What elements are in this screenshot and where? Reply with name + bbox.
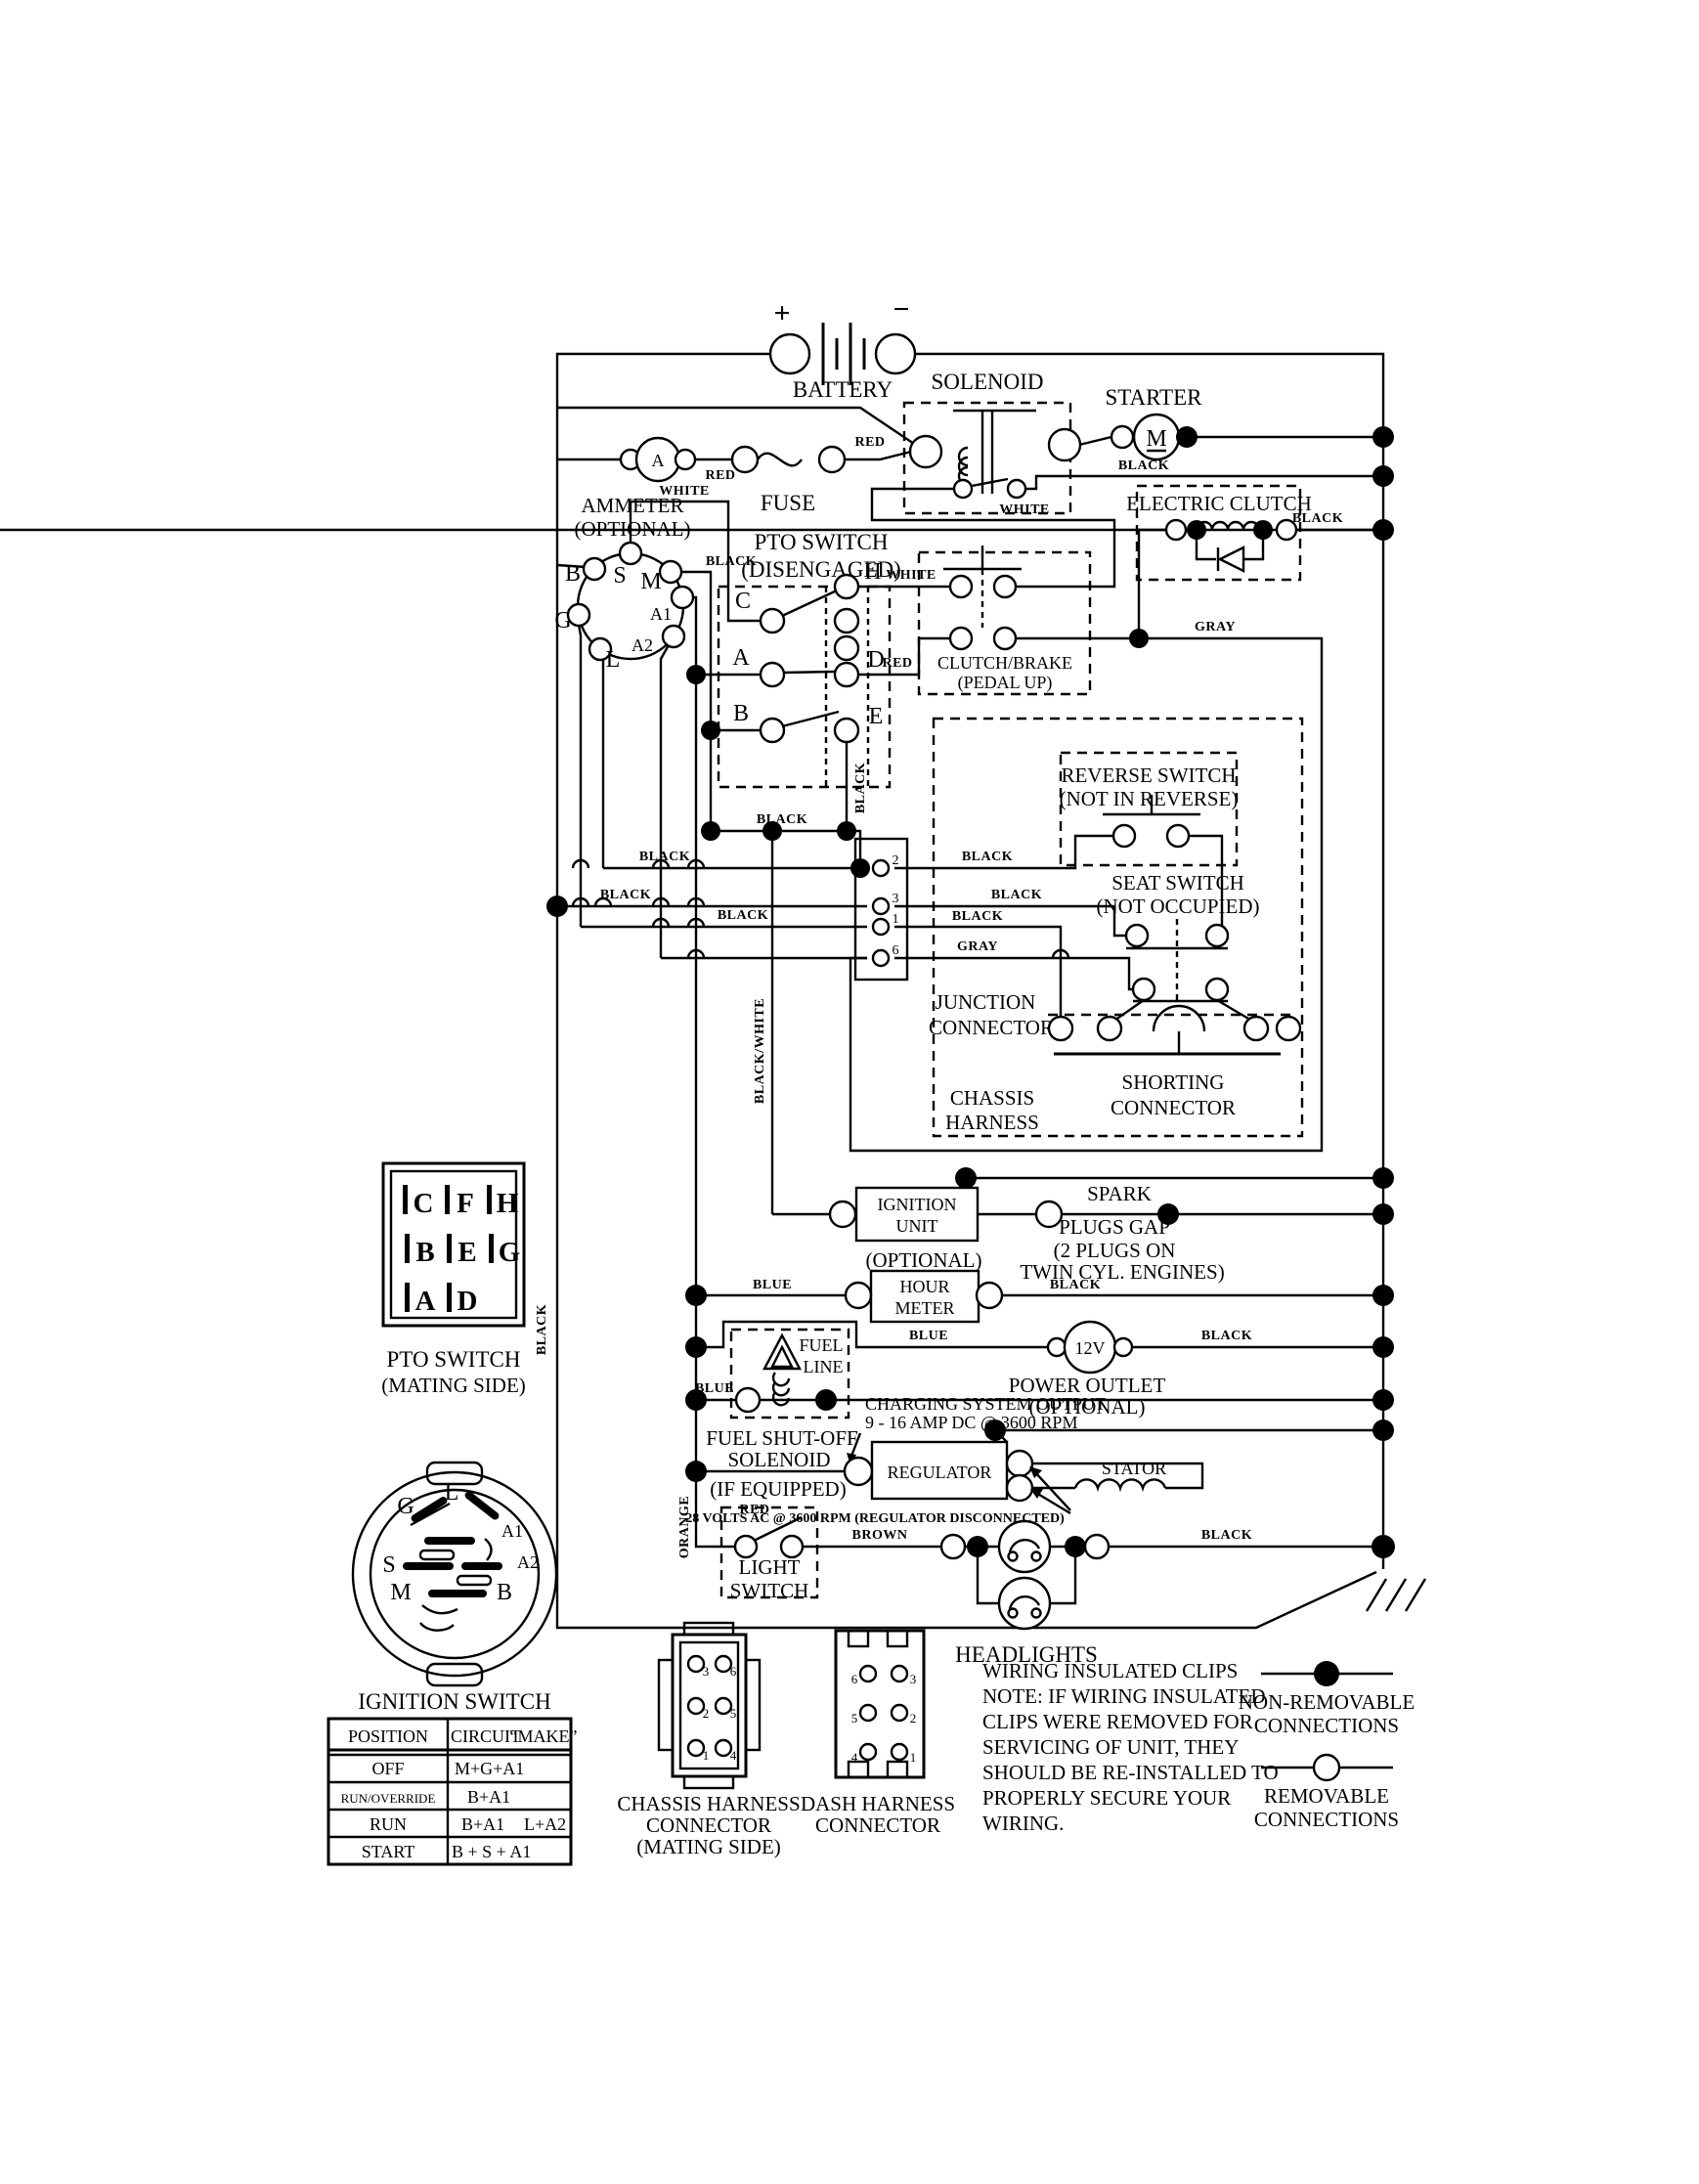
note-line-2: NOTE: IF WIRING INSULATED (982, 1684, 1266, 1708)
pto-letter-e: E (869, 704, 884, 729)
ignition-terminal (830, 1201, 855, 1227)
pto-letter-h: H (864, 559, 881, 585)
reverse-contact (1113, 825, 1135, 847)
table-r2c2: B+A1 (467, 1787, 510, 1807)
outlet-terminal (1048, 1338, 1066, 1356)
junction-label-2: CONNECTOR (929, 1016, 1054, 1039)
charging-label-2: 9 - 16 AMP DC @ 3600 RPM (865, 1413, 1077, 1432)
fuel-arrow (764, 1335, 800, 1369)
light-label-2: SWITCH (730, 1579, 809, 1602)
headlight-terminal (941, 1535, 965, 1558)
solenoid-label: SOLENOID (932, 370, 1044, 394)
junction-pin-1 (873, 919, 889, 935)
dot (984, 1420, 1006, 1441)
legend-r-2: CONNECTIONS (1254, 1808, 1399, 1831)
pto-contact-b (761, 719, 784, 742)
hour-optional: (OPTIONAL) (866, 1248, 982, 1272)
wire-label-black: BLACK (952, 909, 1003, 924)
pto-contact (835, 609, 858, 633)
wire-solenoid-black (1017, 476, 1383, 489)
solenoid-contact (1049, 429, 1080, 460)
dot (1176, 426, 1198, 448)
rosette-m: M (640, 569, 661, 594)
clutch-brake-label: CLUTCH/BRAKE (937, 653, 1072, 673)
non-removable-dot (1314, 1661, 1339, 1686)
dash-conn-label-1: DASH HARNESS (801, 1792, 955, 1815)
charging-label-1: CHARGING SYSTEM OUTPUT (865, 1394, 1106, 1414)
pto-contact-h (835, 575, 858, 598)
dot (1372, 465, 1394, 487)
rosette-l: L (606, 647, 621, 673)
wiring-note: WIRING INSULATED CLIPS NOTE: IF WIRING I… (982, 1659, 1279, 1835)
dash-pin: 2 (910, 1711, 917, 1725)
solenoid-contact (910, 436, 941, 467)
headlight-pin (1009, 1609, 1018, 1618)
dash-pin: 3 (910, 1672, 917, 1686)
note-line-5: SHOULD BE RE-INSTALLED TO (982, 1761, 1279, 1784)
legend-nr-2: CONNECTIONS (1254, 1714, 1399, 1737)
outlet-terminal (1114, 1338, 1132, 1356)
starter-m: M (1146, 426, 1166, 452)
wire-label-red: RED (854, 435, 885, 450)
dot (1372, 1420, 1394, 1441)
chassis-conn-label-1: CHASSIS HARNESS (617, 1792, 800, 1815)
reverse-contact (1167, 825, 1189, 847)
outlet-12v: 12V (1075, 1338, 1106, 1358)
chassis-pin: 4 (730, 1748, 737, 1763)
table-h3: “MAKE” (510, 1726, 578, 1746)
ignition-switch-drawing: G L A1 A2 S M B IGNITION SWITCH (353, 1463, 556, 1714)
shorting-label-2: CONNECTOR (1111, 1096, 1236, 1119)
shorting-arc (1154, 1006, 1204, 1031)
pto-contact-e (835, 719, 858, 742)
seat-contact (1206, 925, 1228, 946)
dash-pin: 5 (851, 1711, 858, 1725)
fuel-label-2: LINE (804, 1357, 844, 1376)
wire-label-black: BLACK (1118, 459, 1169, 473)
pto-blade (784, 672, 835, 673)
spark-gap-terminal (1036, 1201, 1062, 1227)
rosette-terminal-s (620, 543, 641, 564)
fuel-shutoff: FUEL LINE BLUE FUEL SHUT-OFF SOLENOID (I… (695, 1335, 858, 1517)
spark-label-1: SPARK (1087, 1182, 1152, 1205)
wire-clutch-feed (1139, 530, 1176, 638)
volts-arrowhead-2 (1030, 1489, 1043, 1499)
note-line-4: SERVICING OF UNIT, THEY (982, 1735, 1239, 1759)
ignition-unit-label-1: IGNITION (878, 1195, 957, 1214)
ign-m: M (390, 1580, 411, 1605)
dot (685, 1389, 707, 1411)
pin-g: G (499, 1237, 521, 1268)
table-r4c2: B + S + A1 (452, 1842, 531, 1861)
pin-d: D (457, 1286, 478, 1317)
ign-g: G (397, 1494, 414, 1519)
shorting-pin (1049, 1017, 1072, 1040)
seat-contact (1126, 925, 1148, 946)
dot (1372, 1285, 1394, 1306)
note-line-7: WIRING. (982, 1812, 1064, 1835)
junction-pin-num: 6 (893, 943, 899, 958)
spark-label-3: (2 PLUGS ON (1054, 1239, 1176, 1262)
pto-contact (835, 636, 858, 660)
dot (1372, 1203, 1394, 1225)
wire-label-black-bus: BLACK (535, 1304, 549, 1355)
fuse-terminal (732, 447, 758, 472)
wire-label-black: BLACK (1201, 1329, 1252, 1343)
solenoid-blade (972, 479, 1008, 486)
ammeter-symbol: A (652, 451, 665, 470)
junction-pin-2 (873, 860, 889, 876)
dot (1372, 1535, 1395, 1558)
rosette-b: B (565, 561, 581, 587)
pedal-contact (950, 628, 972, 649)
dash-pin: 1 (910, 1750, 917, 1765)
seat-label-2: (NOT OCCUPIED) (1096, 895, 1259, 918)
pedal-contact (994, 628, 1016, 649)
junction-pin-num: 2 (893, 853, 899, 868)
junction-connector: 2 3 1 6 JUNCTION CONNECTOR CHASSIS HARNE… (600, 812, 1054, 1134)
wire-label-gray: GRAY (957, 939, 998, 954)
hour-terminal (846, 1283, 871, 1308)
wire-pin6-seat (894, 958, 1133, 989)
fuel-shutoff-3: (IF EQUIPPED) (710, 1477, 846, 1501)
dot (1372, 426, 1394, 448)
battery-label: BATTERY (793, 377, 893, 402)
pto-letter-b: B (733, 701, 749, 726)
dot (685, 1285, 707, 1306)
wire-label-black-vert: BLACK (853, 763, 868, 813)
rosette-a1: A1 (650, 604, 672, 624)
wire-label-white: WHITE (999, 502, 1050, 517)
regulator-terminal (1007, 1475, 1032, 1501)
hour-terminal (977, 1283, 1002, 1308)
wire-a2 (661, 636, 674, 958)
table-r3c3: L+A2 (524, 1814, 566, 1834)
dot (955, 1167, 977, 1189)
chassis-harness-connector: 3 6 2 5 1 4 CHASSIS HARNESS CONNECTOR (M… (617, 1623, 800, 1858)
battery-positive-terminal (770, 334, 809, 373)
regulator-terminal (1007, 1451, 1032, 1476)
wire-label-brown: BROWN (852, 1528, 908, 1543)
wire-fuse-to-solenoid (844, 452, 911, 459)
dot (850, 858, 870, 878)
pto-contact-a (761, 663, 784, 686)
seat-contact (1206, 979, 1228, 1000)
dot (1253, 520, 1273, 540)
wire-label-black: BLACK (962, 850, 1013, 864)
pto-letter-c: C (735, 589, 751, 614)
wire-pin3-seat (894, 906, 1126, 936)
chassis-pin: 2 (703, 1706, 710, 1721)
junction-label-1: JUNCTION (936, 990, 1036, 1014)
schematic-canvas: + − BATTERY A AMMETER (OPTIONAL) RED FUS… (0, 0, 1699, 2184)
key-switch-connector: S B M G A1 A2 L BLACK (554, 543, 757, 673)
ground-hatch-2 (1386, 1579, 1406, 1611)
dot (685, 1461, 707, 1482)
pto-contact-c (761, 609, 784, 633)
dot (1372, 1167, 1394, 1189)
wire-label-black-white: BLACK/WHITE (753, 998, 767, 1104)
ground-hatch-1 (1367, 1579, 1386, 1611)
dot (546, 895, 568, 917)
light-label-1: LIGHT (739, 1555, 801, 1579)
pto-mating-side: C F H B E G A D PTO SWITCH (MATING SIDE) (381, 1163, 526, 1397)
dot (762, 821, 782, 841)
regulator-label: REGULATOR (888, 1463, 992, 1482)
solenoid-contact-small (1008, 480, 1025, 498)
clutch-brake: CLUTCH/BRAKE (PEDAL UP) GRAY (937, 546, 1236, 693)
dot (1187, 520, 1206, 540)
chassis-pin: 1 (703, 1748, 710, 1763)
volts-arrow-2 (1036, 1493, 1070, 1513)
junction-pin-6 (873, 950, 889, 966)
ammeter-terminal (675, 450, 695, 469)
pedal-contact (950, 576, 972, 597)
note-line-3: CLIPS WERE REMOVED FOR (982, 1710, 1253, 1733)
battery-plus: + (773, 297, 790, 329)
ign-a1: A1 (501, 1521, 523, 1541)
starter-label: STARTER (1105, 385, 1202, 410)
junction-pin-num: 3 (893, 892, 899, 906)
wire-l (600, 649, 603, 868)
wire-label-red: RED (705, 468, 735, 483)
wire-label-white: WHITE (659, 484, 710, 499)
ign-b: B (497, 1580, 512, 1605)
pin-a: A (415, 1286, 436, 1317)
rosette-terminal-b (584, 558, 605, 580)
pto-mating-title-2: (MATING SIDE) (381, 1374, 526, 1397)
wire-label-black: BLACK (1292, 511, 1343, 526)
solenoid-contact-small (954, 480, 972, 498)
shorting-connector: SHORTING CONNECTOR (1048, 1006, 1300, 1119)
ignition-unit-label-2: UNIT (896, 1216, 938, 1236)
chassis-harness-2: HARNESS (945, 1111, 1039, 1134)
fuel-shutoff-2: SOLENOID (728, 1448, 831, 1471)
dot (1129, 629, 1149, 648)
ign-s: S (382, 1552, 395, 1578)
pin-b: B (415, 1237, 434, 1268)
dot (837, 821, 856, 841)
pto-contact-d (835, 663, 858, 686)
pto-switch-box (719, 587, 890, 787)
dot (686, 665, 706, 684)
dot (1372, 1389, 1394, 1411)
battery-negative-terminal (876, 334, 915, 373)
wire-label-black: BLACK (1050, 1278, 1101, 1292)
chassis-conn-tab-b (684, 1776, 733, 1788)
legend-r-1: REMOVABLE (1264, 1784, 1389, 1808)
reverse-switch: REVERSE SWITCH (NOT IN REVERSE) (1060, 764, 1239, 847)
chassis-pin: 3 (703, 1664, 710, 1679)
clutch-brake-pedal-up: (PEDAL UP) (958, 673, 1053, 693)
dot (685, 1336, 707, 1358)
dot (1065, 1536, 1086, 1557)
rosette-terminal-a1 (672, 587, 693, 608)
chassis-pin: 6 (730, 1664, 737, 1679)
volts-note: 28 VOLTS AC @ 3600 RPM (REGULATOR DISCON… (685, 1511, 1065, 1526)
wire-label-black: BLACK (706, 554, 757, 569)
ignition-table: POSITION CIRCUIT “MAKE” OFF M+G+A1 RUN/O… (328, 1719, 577, 1864)
ign-a2: A2 (517, 1552, 539, 1572)
table-r3c2: B+A1 (461, 1814, 504, 1834)
pto-letter-a: A (732, 645, 750, 671)
wire-label-black: BLACK (600, 888, 651, 902)
table-r1c1: OFF (371, 1759, 404, 1778)
chassis-harness-1: CHASSIS (950, 1086, 1034, 1110)
pin-c: C (414, 1188, 434, 1219)
wire-row850 (711, 831, 860, 868)
chassis-conn-label-2: CONNECTOR (646, 1813, 771, 1837)
dot (1157, 1203, 1179, 1225)
dash-conn-label-2: CONNECTOR (815, 1813, 940, 1837)
pto-blade (782, 712, 839, 726)
electric-clutch-label: ELECTRIC CLUTCH (1126, 492, 1312, 515)
starter: STARTER M (1105, 385, 1202, 459)
wire-label-red: RED (882, 656, 912, 671)
fuse-label: FUSE (761, 491, 815, 515)
ignition-inner (370, 1490, 539, 1658)
light-switch-contact (735, 1536, 757, 1557)
seat-switch: SEAT SWITCH (NOT OCCUPIED) (1096, 871, 1259, 1023)
wire-label-white: WHITE (886, 568, 937, 583)
ammeter-optional: (OPTIONAL) (575, 517, 691, 541)
headlight-pin (1009, 1552, 1018, 1561)
wiring-diagram-page: + − BATTERY A AMMETER (OPTIONAL) RED FUS… (0, 0, 1699, 2184)
seat-label-1: SEAT SWITCH (1111, 871, 1244, 895)
pin-e: E (457, 1237, 476, 1268)
table-h1: POSITION (348, 1726, 428, 1746)
stator-label: STATOR (1102, 1459, 1166, 1478)
clutch-terminal (1166, 520, 1186, 540)
dot (701, 721, 720, 740)
dot (967, 1536, 988, 1557)
shorting-pin (1277, 1017, 1300, 1040)
ignition-switch-title: IGNITION SWITCH (358, 1689, 550, 1714)
wire-label-orange: ORANGE (677, 1496, 692, 1558)
chassis-conn-tab-l (659, 1660, 673, 1750)
chassis-conn-tab-r (746, 1660, 760, 1750)
wire-label-black: BLACK (991, 888, 1042, 902)
spark-label-2: PLUGS GAP (1059, 1215, 1170, 1239)
pto-mating-pins: C F H B E G A D (403, 1185, 520, 1317)
battery: + − BATTERY (770, 293, 915, 402)
wire-label-black: BLACK (757, 812, 807, 827)
table-r2c1: RUN/OVERRIDE (341, 1791, 436, 1806)
table-r4c1: START (362, 1842, 414, 1861)
ignition-key-slots (403, 1490, 502, 1631)
table-r3c1: RUN (370, 1814, 407, 1834)
note-line-1: WIRING INSULATED CLIPS (982, 1659, 1238, 1682)
fuse-terminal (819, 447, 845, 472)
fuel-label-1: FUEL (800, 1335, 844, 1355)
battery-minus: − (893, 293, 909, 326)
chassis-conn-label-3: (MATING SIDE) (636, 1835, 781, 1858)
reverse-label-2: (NOT IN REVERSE) (1060, 787, 1239, 810)
junction-pin-num: 1 (893, 912, 899, 927)
rosette-terminal-m (660, 561, 681, 583)
fuel-shutoff-1: FUEL SHUT-OFF (706, 1426, 857, 1450)
diode-triangle (1220, 547, 1243, 571)
pto-label: PTO SWITCH (755, 530, 889, 554)
seat-contact (1133, 979, 1154, 1000)
light-switch-contact (781, 1536, 803, 1557)
headlight-2 (999, 1578, 1050, 1629)
headlight-pin (1032, 1552, 1041, 1561)
wire-label-gray: GRAY (1195, 620, 1236, 634)
ignition-unit: IGNITION UNIT SPARK PLUGS GAP (2 PLUGS O… (753, 998, 1225, 1284)
rosette-s: S (613, 563, 626, 589)
pto-mating-title-1: PTO SWITCH (387, 1347, 521, 1372)
shorting-label-1: SHORTING (1122, 1070, 1225, 1094)
reverse-label-1: REVERSE SWITCH (1061, 764, 1236, 787)
rosette-a2: A2 (632, 635, 653, 655)
wire-12v-l (696, 1322, 1048, 1347)
dash-pin: 4 (851, 1750, 858, 1765)
pto-blade (782, 590, 837, 616)
regulator-terminal (845, 1458, 872, 1485)
dot (701, 821, 720, 841)
headlight-terminal (1085, 1535, 1109, 1558)
stator-coil (1075, 1479, 1165, 1488)
rosette-terminal-a2 (663, 626, 684, 647)
chassis-pin: 5 (730, 1706, 737, 1721)
fuse-element (758, 454, 802, 466)
hour-label-2: METER (895, 1298, 955, 1318)
ammeter-fuse: A AMMETER (OPTIONAL) RED FUSE RED (575, 435, 886, 541)
wire-label-black: BLACK (1201, 1528, 1252, 1543)
ground-hatch-3 (1406, 1579, 1425, 1611)
ign-l: L (445, 1480, 459, 1506)
legend-nr-1: NON-REMOVABLE (1239, 1690, 1415, 1714)
dash-pin: 6 (851, 1672, 858, 1686)
table-r1c2: M+G+A1 (455, 1759, 524, 1778)
headlight-1 (999, 1521, 1050, 1572)
pedal-contact (994, 576, 1016, 597)
pin-h: H (497, 1188, 519, 1219)
electric-clutch: ELECTRIC CLUTCH BLACK (1126, 492, 1343, 571)
dot (1372, 519, 1394, 541)
wire-label-blue: BLUE (753, 1278, 792, 1292)
wire-label-blue: BLUE (909, 1329, 948, 1343)
headlight-pin (1032, 1609, 1041, 1618)
dot (815, 1389, 837, 1411)
fuel-terminal (736, 1388, 760, 1412)
wire-label-black: BLACK (639, 850, 690, 864)
junction-pin-3 (873, 898, 889, 914)
dot (1372, 1336, 1394, 1358)
rosette-g: G (554, 608, 571, 633)
shorting-pin (1244, 1017, 1268, 1040)
hour-label-1: HOUR (899, 1277, 949, 1296)
shorting-pin (1098, 1017, 1121, 1040)
starter-terminal (1111, 426, 1133, 448)
note-line-6: PROPERLY SECURE YOUR (982, 1786, 1231, 1810)
removable-circle (1314, 1755, 1339, 1780)
dash-harness-connector: 6 3 5 2 4 1 DASH HARNESS CONNECTOR (801, 1631, 955, 1837)
pin-f: F (457, 1188, 474, 1219)
wire-label-black: BLACK (718, 908, 768, 923)
wire-g (579, 625, 581, 927)
